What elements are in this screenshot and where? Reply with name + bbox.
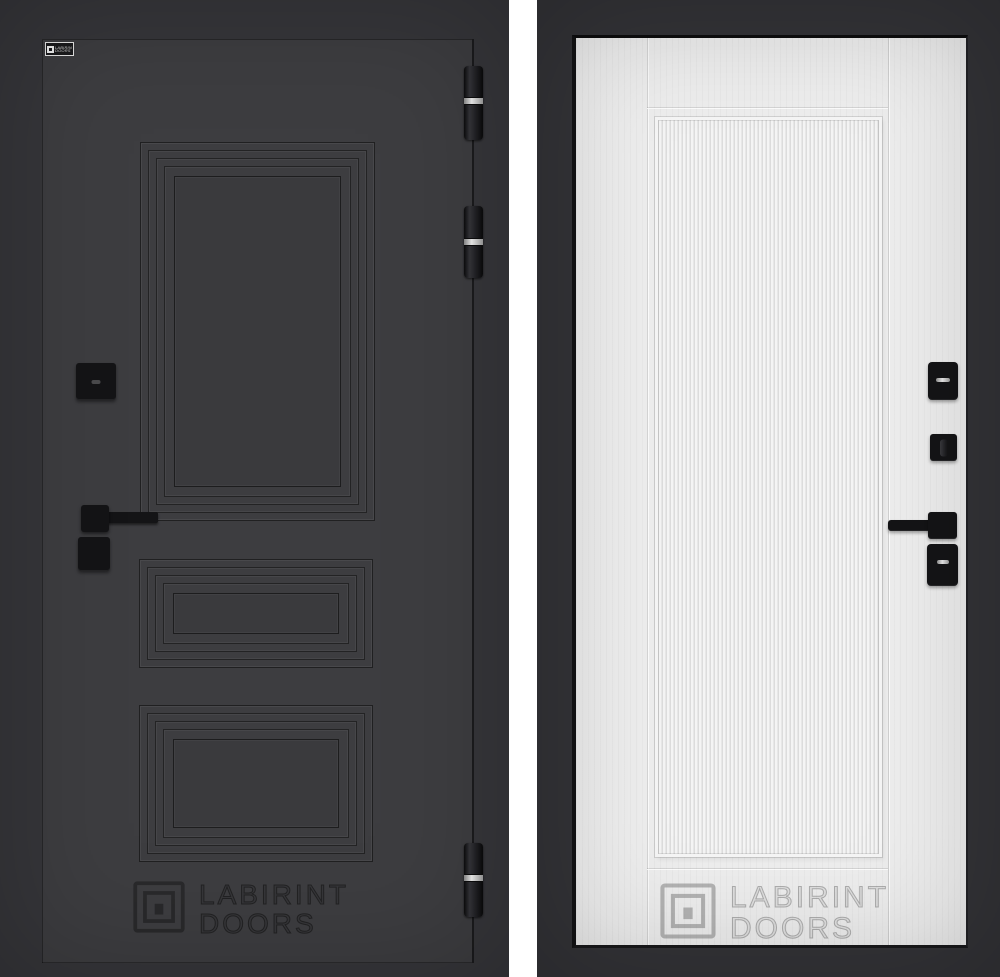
keyhole-icon — [92, 380, 101, 384]
door-product-image: LABIRINT DOORS LABIRINT DOORS — [0, 0, 1000, 977]
cylinder-escutcheon-lower — [927, 544, 958, 586]
door-photo-exterior[interactable]: LABIRINT DOORS LABIRINT DOORS — [0, 0, 509, 977]
cylinder-escutcheon-upper — [928, 362, 958, 400]
keyhole-escutcheon-upper — [76, 363, 116, 400]
door-photo-interior[interactable]: LABIRINT DOORS — [537, 0, 1000, 977]
fluted-center-panel — [655, 117, 882, 857]
brand-badge-line2: DOORS — [55, 49, 72, 52]
hinge-ring-icon — [464, 874, 483, 882]
door-handle-rose-interior — [928, 512, 957, 539]
hinge-bottom — [464, 843, 483, 917]
brand-badge: LABIRINT DOORS — [45, 42, 74, 56]
keyhole-indicator-icon — [937, 560, 949, 564]
panel-groove-bottom — [647, 868, 888, 869]
hinge-ring-icon — [464, 238, 483, 246]
door-handle-rose-exterior — [81, 505, 109, 532]
keyhole-escutcheon-lower — [78, 537, 110, 571]
thumb-turn-knob — [940, 439, 948, 456]
panel-groove-right — [888, 38, 889, 945]
raised-panel-top — [140, 142, 375, 521]
hinge-top — [464, 66, 483, 140]
raised-panel-middle — [139, 559, 373, 668]
hinge-ring-icon — [464, 97, 483, 105]
hinge-middle — [464, 206, 483, 278]
door-edge-gap-line — [472, 39, 474, 963]
panel-groove-left — [647, 38, 648, 945]
brand-logo-icon — [47, 46, 54, 53]
thumb-turn-rose — [930, 434, 957, 461]
panel-groove-top — [647, 107, 888, 108]
brand-badge-text: LABIRINT DOORS — [55, 46, 72, 53]
cylinder-indicator-icon — [936, 378, 950, 382]
raised-panel-bottom — [139, 705, 373, 862]
